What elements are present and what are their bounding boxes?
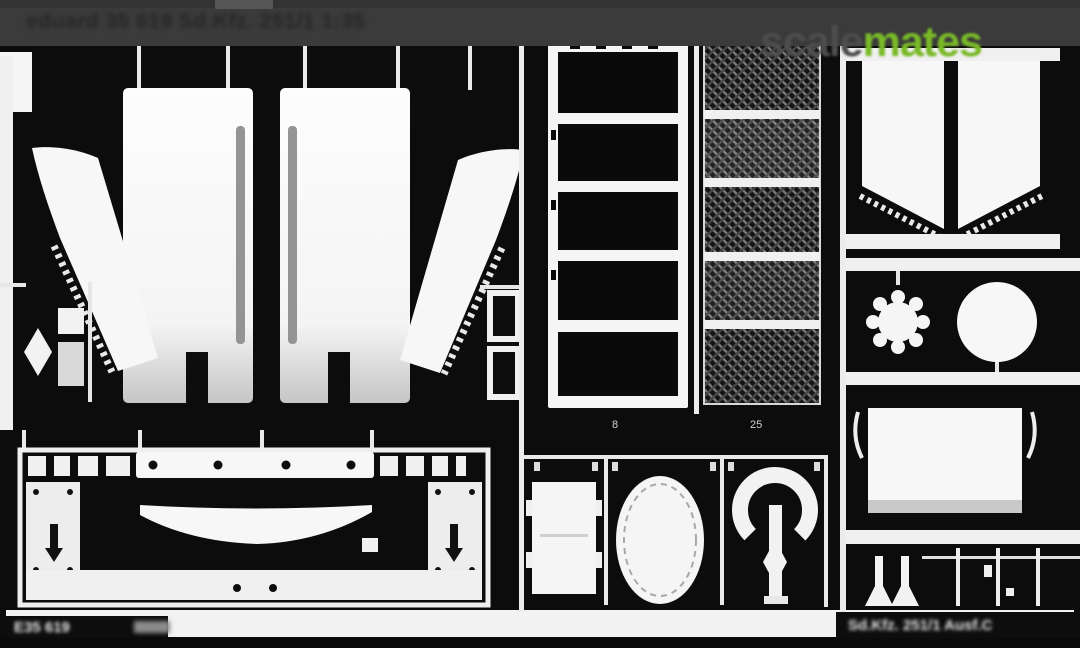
shackle-stem-boss (763, 540, 787, 584)
disc-connector-top (896, 271, 900, 285)
divider-line-2 (694, 42, 699, 414)
curved-blade-part (140, 505, 372, 544)
tray-bottom-strip (26, 570, 482, 600)
diamond-part (24, 328, 52, 376)
mesh-shade-variation-2 (704, 261, 820, 320)
bottom-panels-top-line (524, 455, 828, 459)
fret-left-border (0, 56, 13, 430)
small-square-part (58, 308, 84, 334)
footer-subject-bar: Sd.Kfz. 251/1 Ausf.C (836, 612, 1080, 638)
lid-hook-left (855, 412, 862, 458)
fret-title-text: eduard 35 619 Sd.Kfz. 251/1 1:35 (26, 10, 626, 40)
footer-code-smudge (134, 621, 170, 633)
header-top-strip (0, 0, 1080, 8)
sprue-ticks-top (137, 46, 472, 90)
shackle-foot (764, 596, 788, 604)
photo-etch-fret-scan: 8 25 (0, 0, 1080, 648)
footer-code-text: E35 619 (14, 619, 70, 636)
bottom-left-assembly (20, 430, 488, 605)
rect-plate-scoreline (540, 534, 588, 537)
header-small-mark (215, 0, 273, 9)
large-disc-part (957, 282, 1037, 362)
lid-plate-fold-edge (868, 500, 1022, 513)
part-number-mark: 8 (612, 419, 618, 431)
divider-line-3 (840, 46, 846, 612)
strip-below-bin (846, 234, 1060, 249)
blade-end-tab (362, 538, 378, 552)
left-edge-tab (0, 283, 26, 287)
fret-graphics: 8 25 (0, 0, 1080, 648)
scalemates-watermark: scalemates (760, 18, 982, 67)
ladder-openings (558, 52, 678, 396)
middle-section: 8 25 (519, 42, 828, 612)
mesh-grille-column (704, 42, 820, 404)
small-rect-part (58, 342, 84, 386)
right-mid-bar (846, 530, 1080, 544)
footer-code-bar: E35 619 (6, 616, 168, 638)
funnel-bracket-parts (865, 556, 919, 606)
panel-left-notch (186, 352, 208, 403)
footer-subject-text: Sd.Kfz. 251/1 Ausf.C (848, 617, 992, 634)
connector-line (480, 285, 522, 289)
sprue-ticks-mid (22, 430, 374, 450)
lid-plate-part (868, 408, 1022, 500)
discs-panel-top-bar (846, 258, 1080, 271)
lid-hook-right (1028, 412, 1035, 458)
bottom-black-strip (0, 637, 1080, 648)
part-number-mark: 25 (750, 419, 762, 431)
right-section (840, 46, 1080, 612)
panel-right-slot (288, 126, 297, 344)
left-section (0, 46, 524, 430)
framed-part-lower-window (493, 352, 515, 394)
oval-blank-part (616, 476, 704, 604)
mesh-shade-variation (704, 119, 820, 178)
gear-disc-part (866, 290, 930, 354)
discs-panel-bottom-bar (846, 372, 1080, 385)
thin-rail-part (922, 556, 1080, 559)
watermark-mates-text: mates (863, 18, 982, 66)
framed-part-upper-window (493, 296, 515, 336)
divider-line-1 (519, 46, 524, 612)
panel-left-slot (236, 126, 245, 344)
top-bar-with-holes (136, 452, 374, 478)
thin-strip-part (88, 282, 92, 402)
hinge-strip-left (28, 456, 130, 476)
panel-right-notch (328, 352, 350, 403)
watermark-scale-text: scale (760, 18, 863, 66)
rect-plate-part (532, 482, 596, 594)
